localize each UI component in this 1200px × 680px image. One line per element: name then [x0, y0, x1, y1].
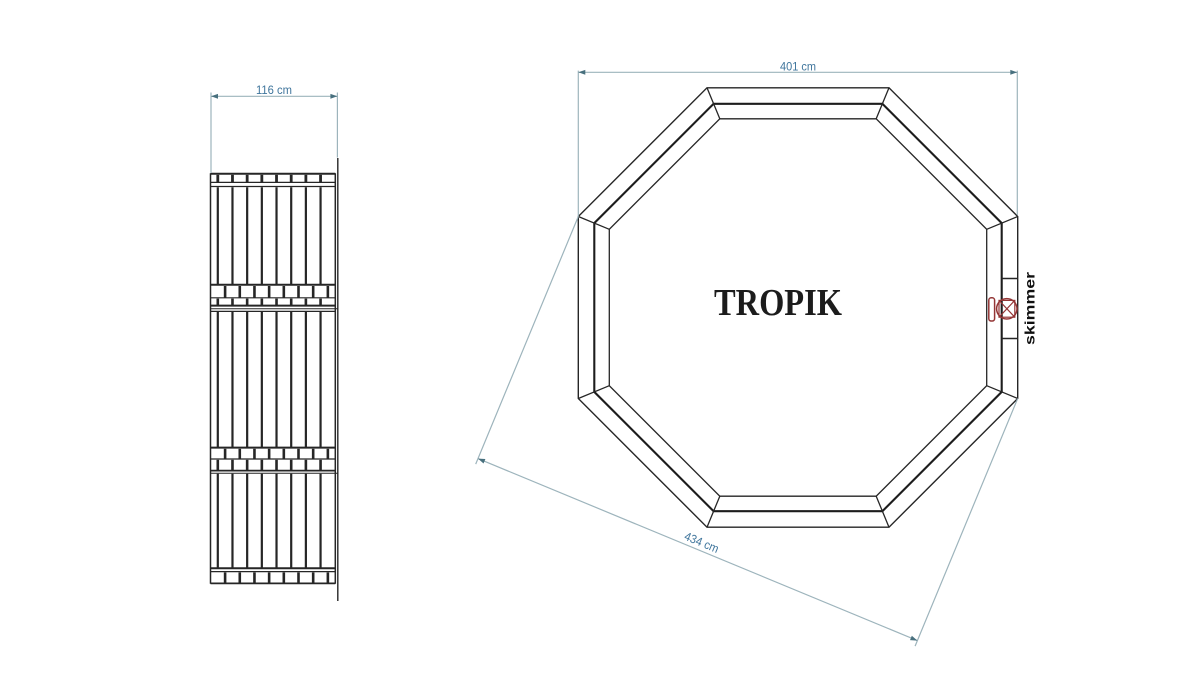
svg-text:116 cm: 116 cm	[256, 83, 292, 97]
svg-text:TROPIK: TROPIK	[714, 282, 842, 324]
svg-text:401 cm: 401 cm	[780, 59, 816, 73]
svg-text:skimmer: skimmer	[1022, 271, 1038, 345]
